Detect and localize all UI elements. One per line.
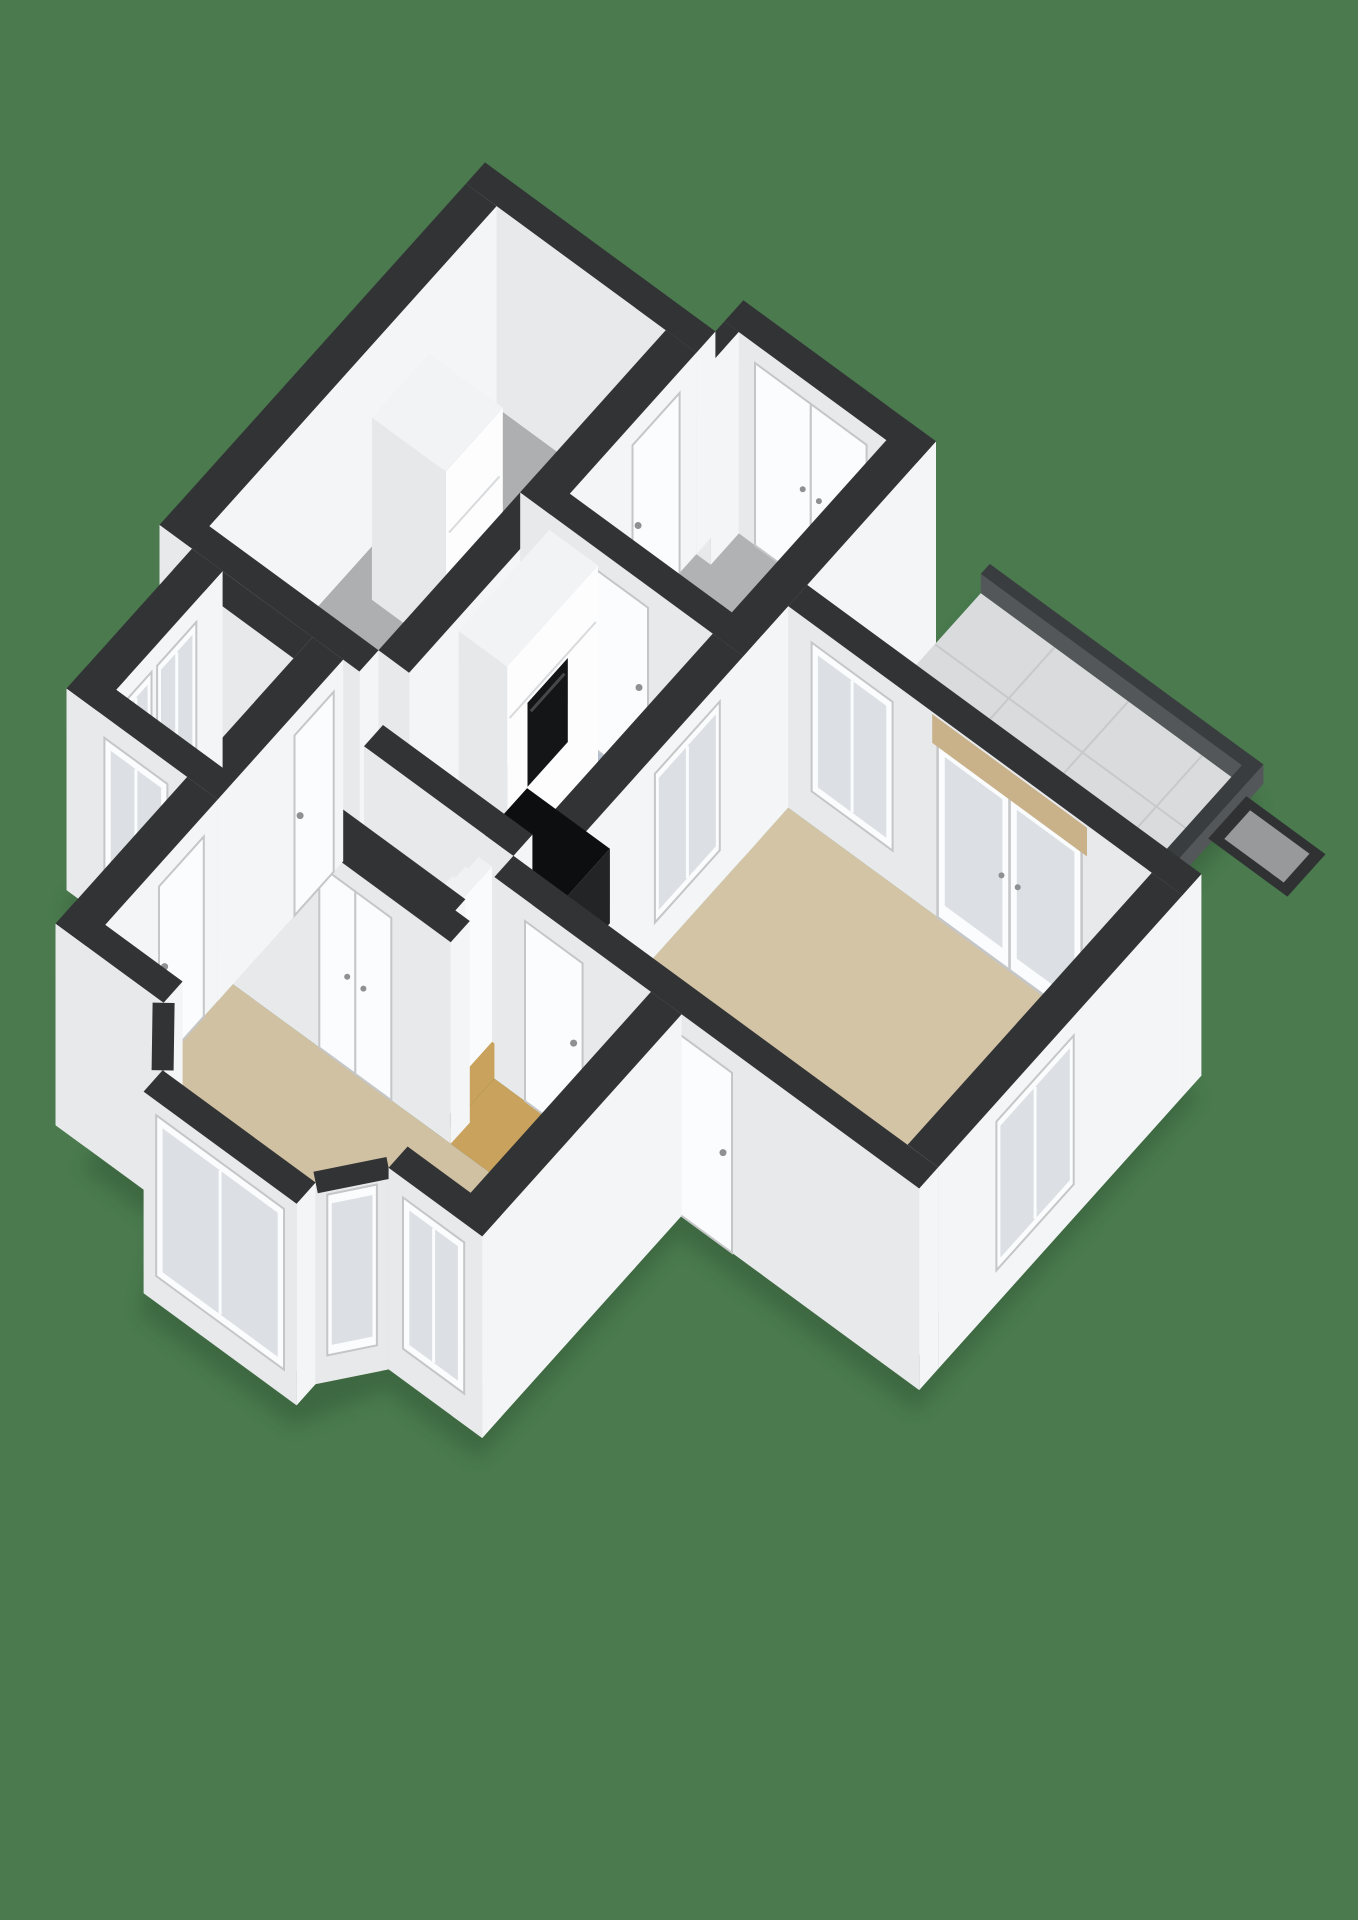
hall-living-doors-handle-1 [344, 974, 350, 980]
bay-window-east-glass [332, 1195, 373, 1345]
entry-kitchen-door-handle [636, 684, 643, 691]
floorplan-3d-render [0, 0, 1358, 1920]
terrace-french-doors-handle-2 [1015, 884, 1021, 890]
hall-living-doors-leaf-2 [355, 892, 391, 1101]
bay-wall-southeast-top [316, 1168, 389, 1183]
front-doors-handle-1 [800, 486, 806, 492]
hall-right-room-door-handle [570, 1040, 577, 1047]
bay-wall-front-face-e [297, 1183, 316, 1406]
wall-north-living-face-e [451, 921, 470, 1144]
garage-entry-door-handle [635, 522, 642, 529]
wall-south-bedroom-face-e [218, 778, 237, 1001]
wall-north-right-room-face-e [1182, 874, 1201, 1097]
wall-south-entry-face-e [743, 635, 762, 858]
living-right-room-door-handle [720, 1149, 727, 1156]
hall-living-doors-leaf-1 [319, 865, 355, 1074]
bay-wall-southwest-top [163, 1003, 164, 1071]
front-doors-handle-2 [816, 498, 822, 504]
wall-south-right-room-face-e [919, 1167, 938, 1390]
wall-south-living-east-face-e [482, 1215, 501, 1438]
wall-north-garage-face-e [696, 331, 715, 554]
bedroom-door-handle [297, 812, 304, 819]
hall-living-doors-handle-2 [360, 986, 366, 992]
floorplan-stage [0, 0, 1358, 1920]
terrace-french-doors-handle-1 [999, 872, 1005, 878]
